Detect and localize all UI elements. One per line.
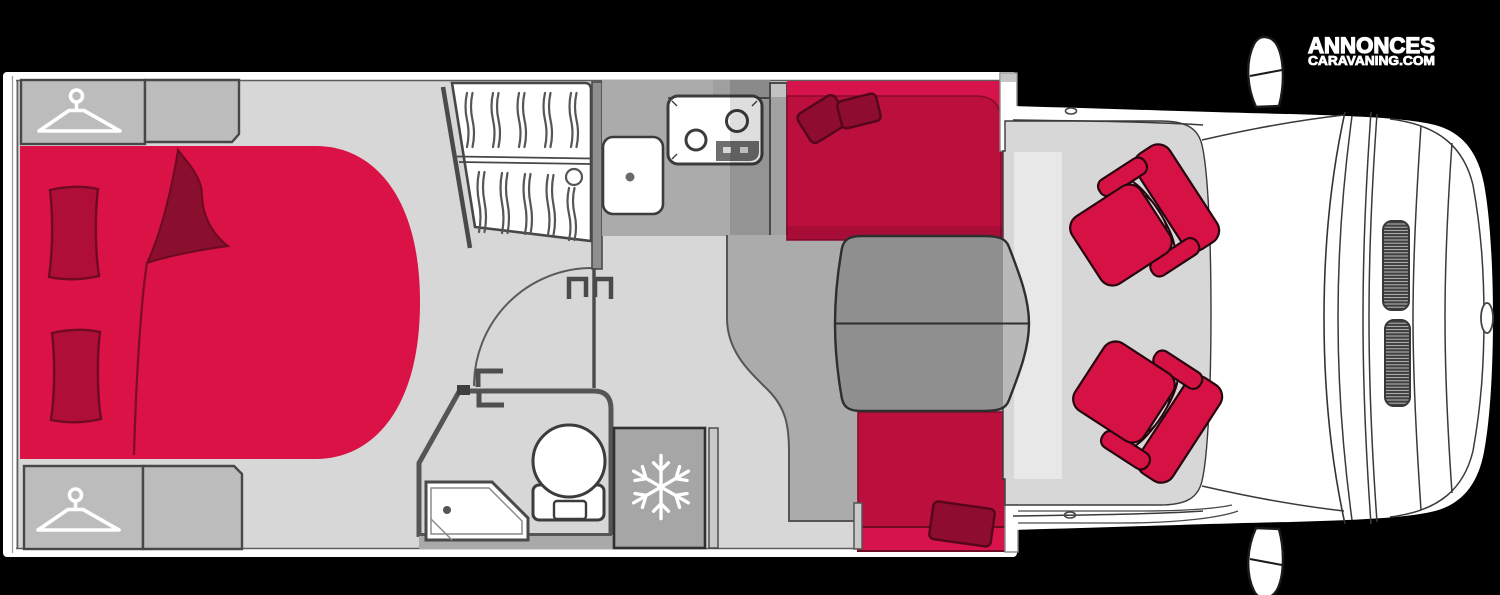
- svg-text:CARAVANING.COM: CARAVANING.COM: [1308, 54, 1435, 68]
